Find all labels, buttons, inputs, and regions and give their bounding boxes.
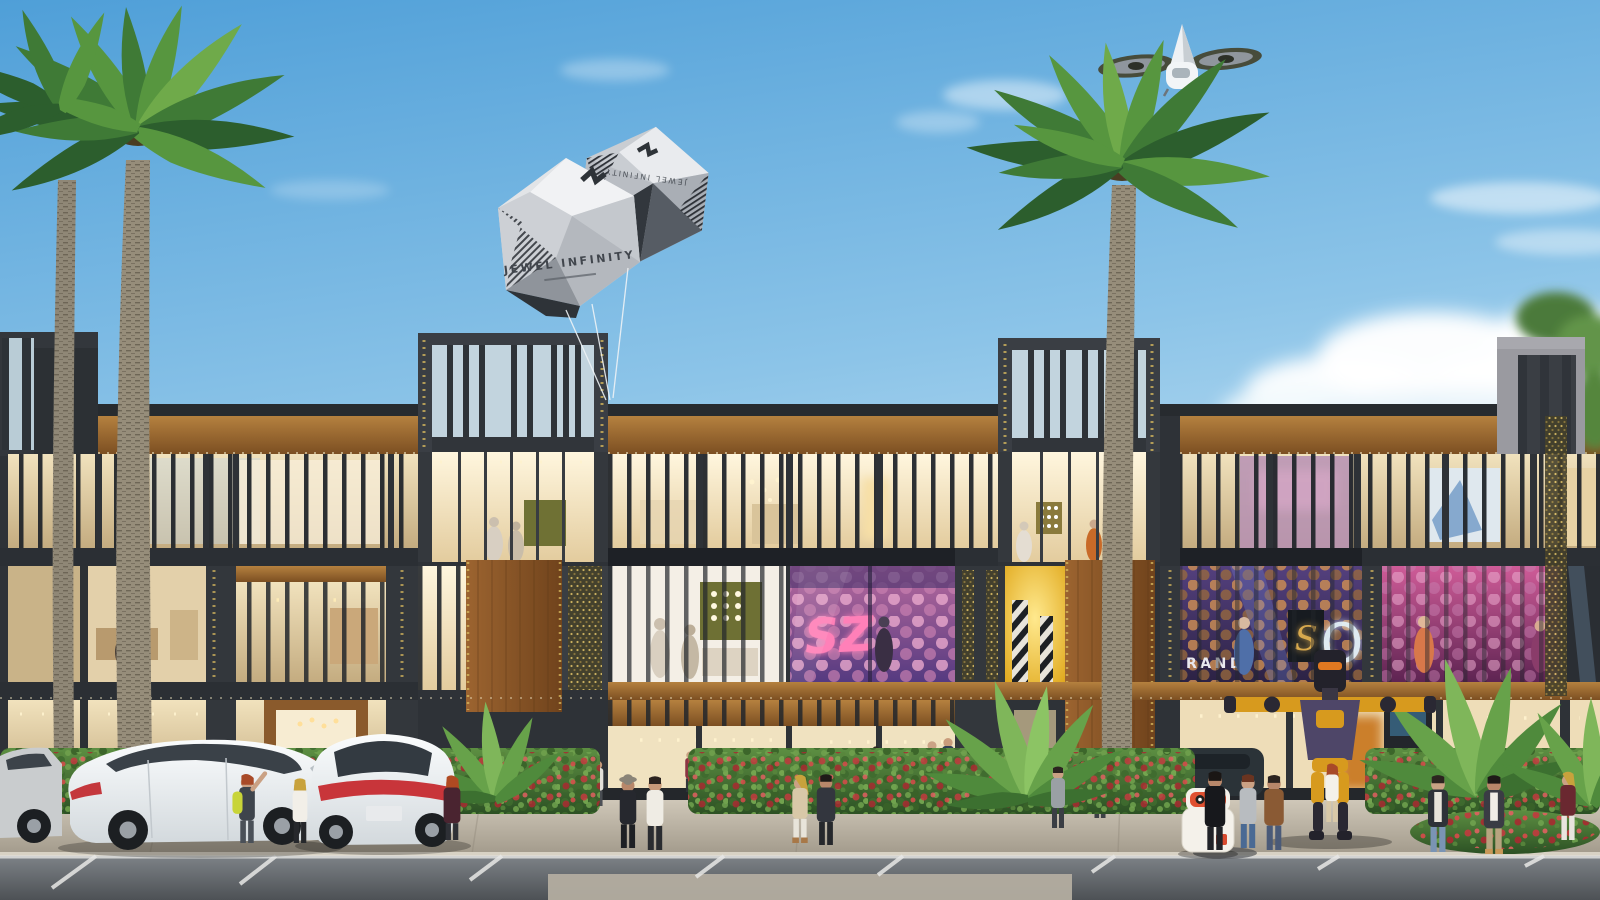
tower1-boutique (418, 452, 608, 562)
tower-left-edge (0, 332, 98, 456)
tower-1 (418, 333, 608, 455)
store-magenta (1382, 566, 1562, 682)
rendering-canvas: JEWEL INFINITY JEWEL INFINITY (0, 0, 1600, 900)
store-yellow (1005, 566, 1065, 682)
wood-fascia-mid (608, 416, 998, 454)
store-white-fashion (608, 548, 790, 682)
car-grey-partial (0, 748, 62, 843)
tower-2 (998, 338, 1160, 452)
tower-right-grey (1497, 337, 1585, 455)
scene-svg: JEWEL INFINITY JEWEL INFINITY (0, 0, 1600, 900)
store-pink-neon: SZ (790, 548, 955, 682)
top-floor (8, 454, 1600, 548)
wood-feature-panel-1 (466, 560, 562, 712)
concrete-band (548, 874, 1072, 900)
tower2-boutique (998, 452, 1160, 562)
restaurant-bay (236, 566, 386, 682)
